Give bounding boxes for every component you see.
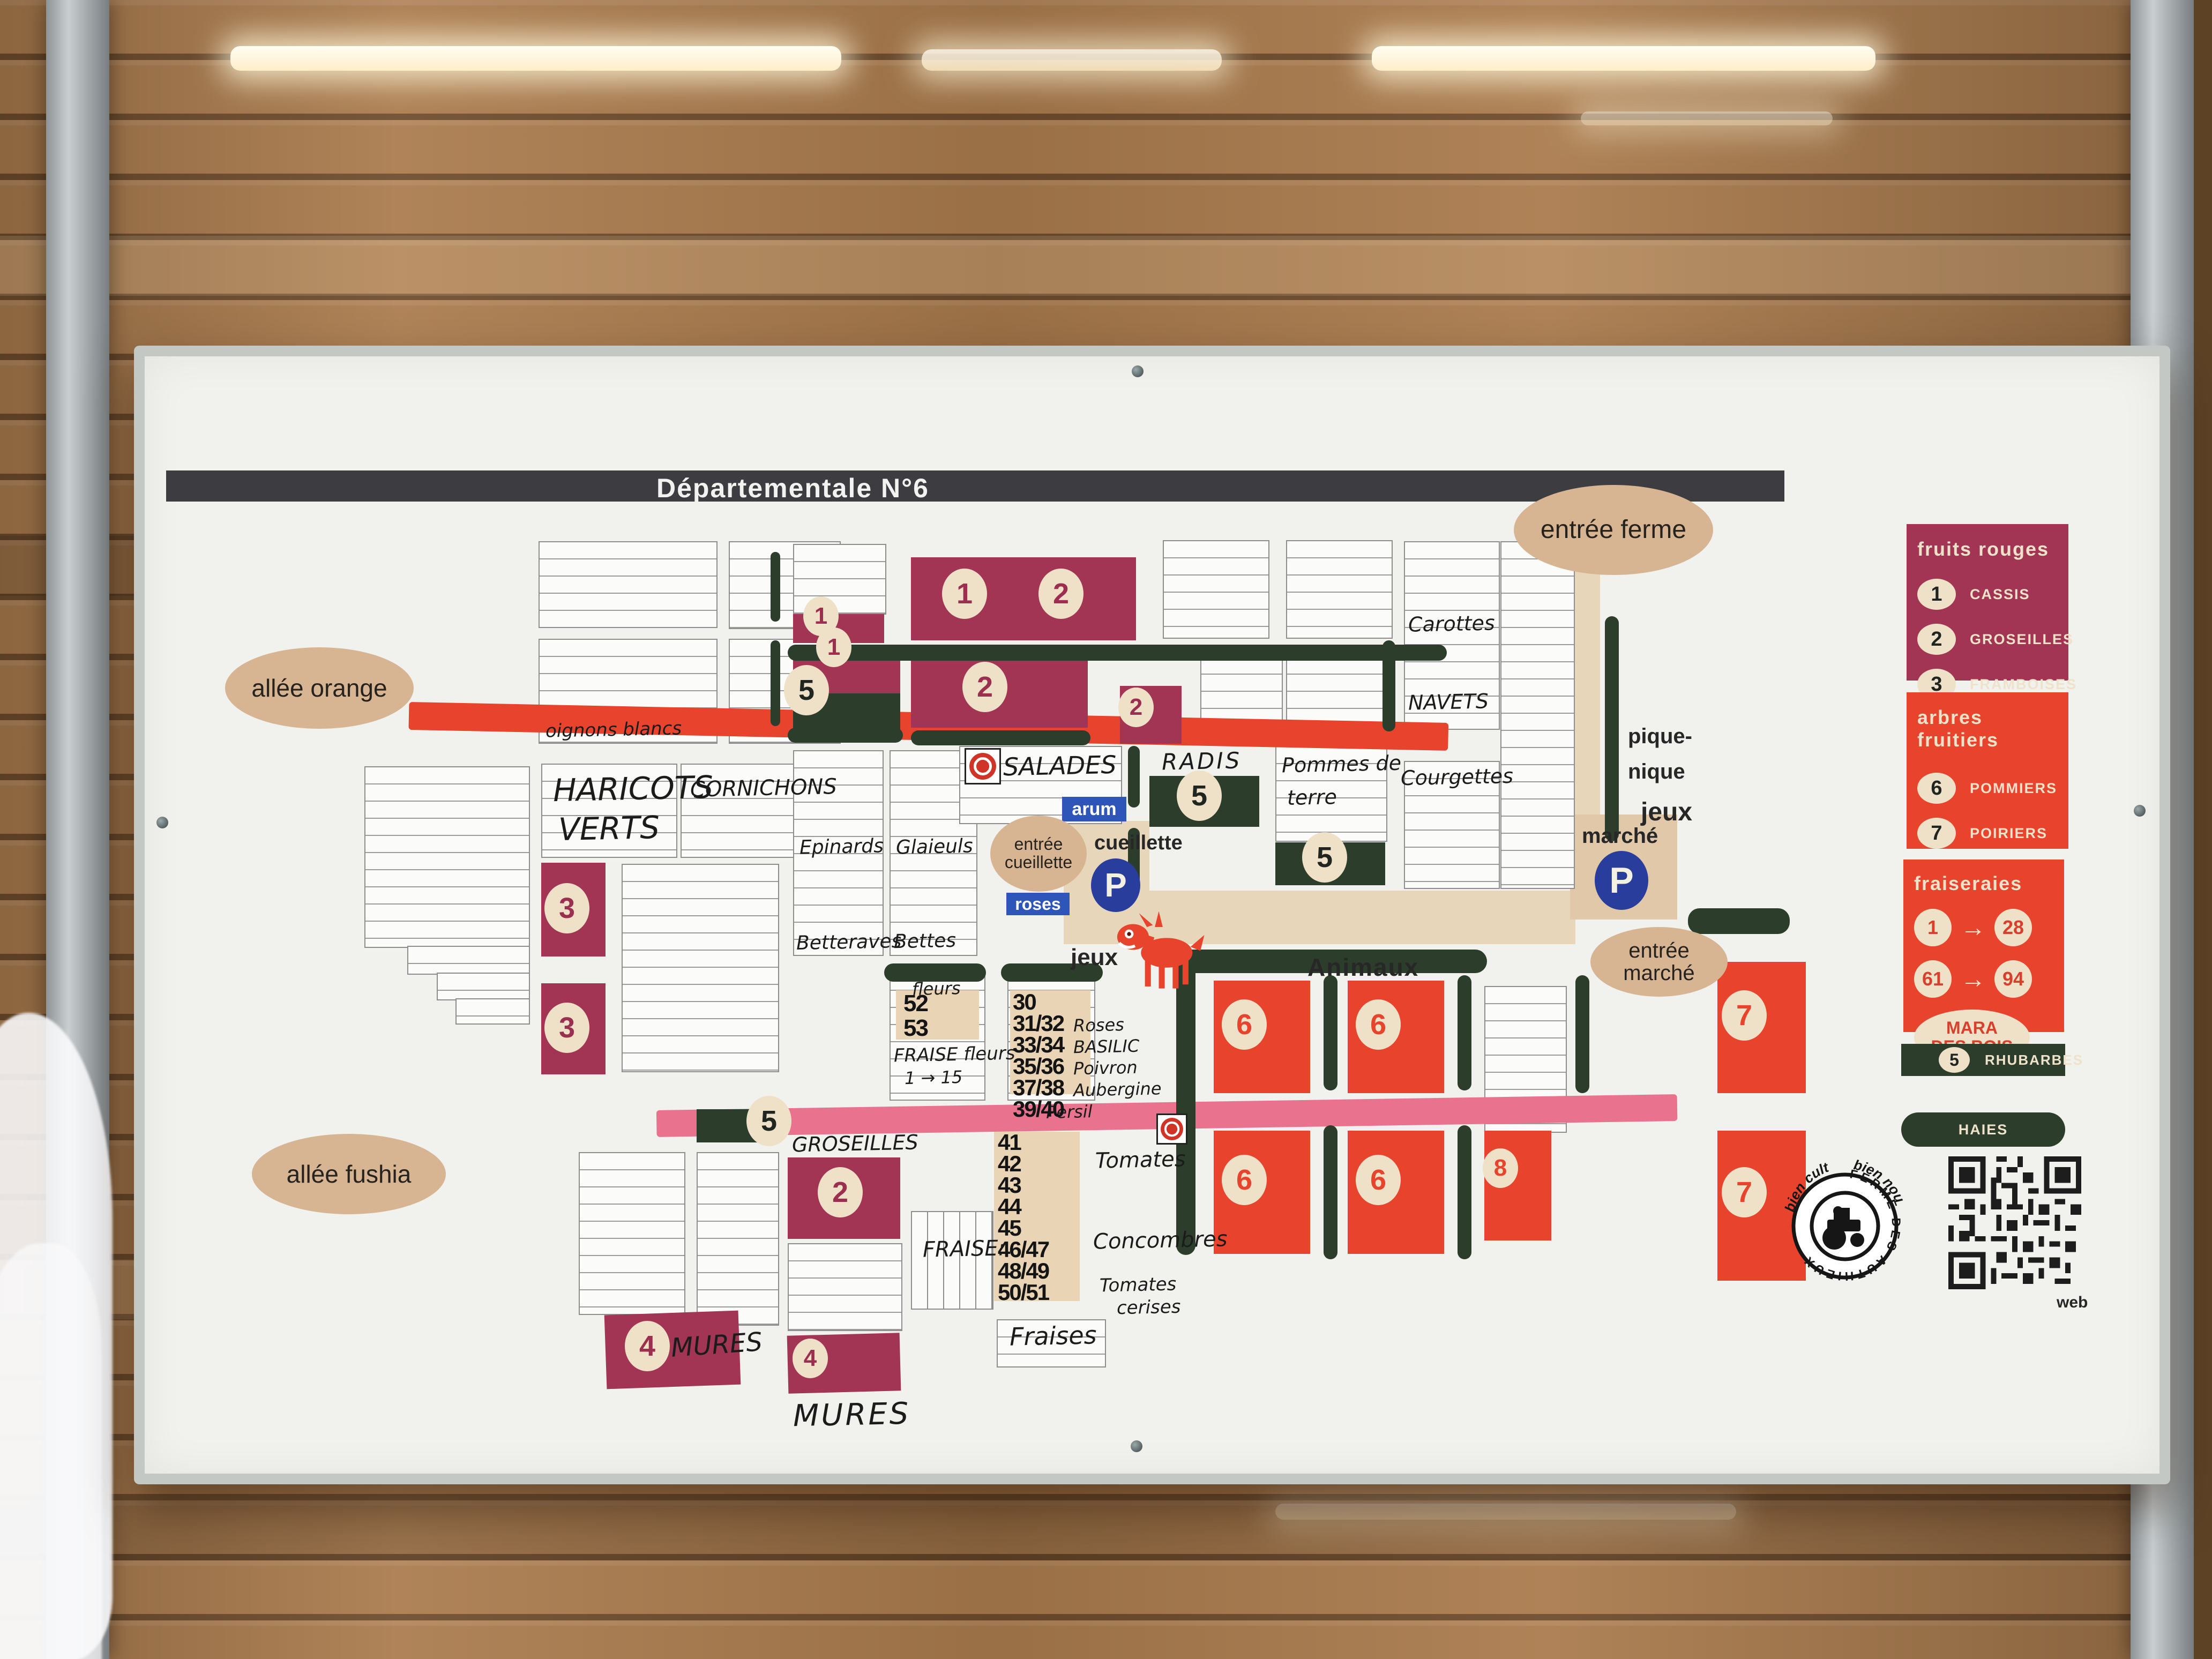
entree-ferme-text: entrée ferme <box>1541 517 1686 543</box>
light-gap <box>230 46 841 71</box>
hand-haricots-1: HARICOTS <box>552 769 713 809</box>
entree-cueillette-text-1: entrée <box>1014 835 1063 854</box>
plot-badge: 3 <box>544 1003 589 1053</box>
haie <box>771 640 780 726</box>
plot-badge: 2 <box>818 1167 863 1217</box>
haie <box>911 730 1090 745</box>
parking-symbol: P <box>1609 860 1633 901</box>
arum-label: arum <box>1062 797 1126 821</box>
jeux-picnic-label: jeux <box>1641 797 1692 827</box>
row-crop: Roses <box>1073 1014 1125 1036</box>
hand-radis: RADIS <box>1162 747 1242 775</box>
haie <box>1605 616 1619 841</box>
allee-fushia-text: allée fushia <box>287 1161 412 1187</box>
hand-haricots-2: VERTS <box>558 809 660 848</box>
row-crop: Aubergine <box>1073 1078 1162 1100</box>
plot-badge: 6 <box>1222 1155 1267 1205</box>
col-fleurs-53: 53 <box>903 1015 928 1042</box>
hand-betteraves: Betteraves <box>796 930 902 954</box>
plot-badge: 6 <box>1356 1155 1401 1205</box>
screw <box>156 817 168 828</box>
plot-badge: 5 <box>746 1096 791 1146</box>
hand-fraise-colon: FRAISE: <box>923 1236 1006 1262</box>
hand-pommes-1: Pommes de <box>1282 751 1402 778</box>
road-departementale <box>166 470 1784 502</box>
legend-badge: 5 <box>1939 1047 1970 1073</box>
plot-badge: 8 <box>1483 1148 1518 1188</box>
legend-item-label: HAIES <box>1959 1122 2008 1138</box>
roses-text: roses <box>1015 894 1060 914</box>
hand-cornichons: CORNICHONS <box>690 774 838 802</box>
field-plot <box>622 864 779 1072</box>
plot-badge: 5 <box>1302 832 1347 883</box>
qr-caption: web <box>2057 1294 2088 1312</box>
hand-mures-mid: MURES <box>793 1396 910 1434</box>
legend-item-label: POIRIERS <box>1970 825 2047 842</box>
haie <box>1458 975 1471 1090</box>
row-crop: BASILIC <box>1073 1036 1140 1058</box>
hand-courgettes: Courgettes <box>1401 764 1514 790</box>
hand-cerises-1: Tomates <box>1100 1274 1177 1297</box>
col-trente: 30 31/32Roses 33/34BASILIC 35/36Poivron … <box>1013 989 1162 1118</box>
plot-badge: 5 <box>1177 771 1222 821</box>
entree-marche-text-1: entrée <box>1628 939 1689 962</box>
hand-epinards: Epinards <box>799 835 884 858</box>
haie <box>1128 746 1140 808</box>
price-sticker <box>1156 1114 1187 1145</box>
entree-cueillette-oval: entrée cueillette <box>990 816 1087 892</box>
range-from: 1 <box>1914 909 1952 946</box>
plot-badge: 7 <box>1722 1167 1767 1217</box>
arrow-icon: → <box>1960 965 1986 994</box>
col-fleurs-52: 52 <box>903 990 928 1017</box>
allee-orange-oval: allée orange <box>225 647 414 729</box>
range-from: 61 <box>1914 960 1952 998</box>
plot-badge: 6 <box>1356 999 1401 1050</box>
plot-badge: 2 <box>1118 687 1154 727</box>
roses-label: roses <box>1006 893 1070 915</box>
screw <box>1132 365 1144 377</box>
parking-marche: P <box>1595 851 1648 910</box>
legend-badge: 2 <box>1917 624 1956 655</box>
hand-tomates: Tomates <box>1095 1147 1186 1174</box>
legend-fruits-rouges: fruits rouges 1CASSIS 2GROSEILLES 3FRAMB… <box>1907 524 2068 681</box>
hand-glaieuls: Glaieuls <box>896 835 974 858</box>
field-plot <box>788 1243 902 1331</box>
allee-fushia-oval: allée fushia <box>252 1134 446 1214</box>
road-departementale-label: Départementale N°6 <box>656 473 929 504</box>
legend-title: arbres fruitiers <box>1917 706 2058 751</box>
plot-badge: 7 <box>1722 990 1767 1041</box>
light-gap <box>1581 111 1833 125</box>
hand-fraise-range: 1 → 15 <box>905 1067 963 1088</box>
haie <box>1324 975 1337 1090</box>
entree-marche-oval: entrée marché <box>1590 927 1728 997</box>
allee-orange-text: allée orange <box>251 675 387 701</box>
hand-cerises-2: cerises <box>1117 1296 1181 1319</box>
qr-code <box>1948 1156 2081 1289</box>
plot-badge: 2 <box>1038 569 1083 619</box>
haie <box>1324 1125 1337 1259</box>
entree-ferme-oval: entrée ferme <box>1514 485 1713 575</box>
hand-oignons-blancs: oignons blancs <box>545 718 682 742</box>
photo-scene: Départementale N°6 <box>0 0 2212 1659</box>
field-plot <box>579 1152 685 1315</box>
hand-groseilles: GROSEILLES <box>792 1131 918 1157</box>
legend-haies: HAIES <box>1901 1112 2065 1147</box>
pique-nique-label-2: nique <box>1628 760 1685 784</box>
wood-edge-strip <box>2194 0 2212 1659</box>
haie <box>788 645 1447 661</box>
screw <box>2134 805 2146 817</box>
arum-text: arum <box>1072 799 1116 820</box>
plot-badge: 2 <box>962 662 1007 712</box>
variety-text-1: MARA <box>1946 1019 1998 1037</box>
hand-navets: NAVETS <box>1408 689 1489 714</box>
col-quarante: 41 42 43 44 45 46/47 48/49 50/51 <box>998 1130 1049 1301</box>
field-plot <box>539 541 718 628</box>
plank-shade <box>0 236 2212 296</box>
arrow-icon: → <box>1960 913 1986 943</box>
legend-item-label: GROSEILLES <box>1970 631 2074 648</box>
row-num: 50/51 <box>998 1280 1049 1305</box>
field-plot <box>455 998 530 1025</box>
haie <box>1575 975 1589 1093</box>
plank-shade <box>0 1500 2212 1560</box>
hand-fraises: Fraises <box>1009 1320 1097 1351</box>
haie <box>1688 908 1790 934</box>
price-sticker <box>965 748 1001 784</box>
hand-salades: SALADES <box>1003 750 1117 781</box>
plot-badge: 4 <box>793 1339 828 1378</box>
range-to: 94 <box>1994 960 2032 998</box>
plot-badge: 1 <box>942 569 987 619</box>
legend-item-label: POMMIERS <box>1970 780 2057 797</box>
hand-carottes: Carottes <box>1408 611 1496 636</box>
legend-item-label: RHUBARBES <box>1985 1052 2083 1068</box>
haie <box>788 728 903 743</box>
plot-badge: 6 <box>1222 999 1267 1050</box>
legend-fraiseraies: fraiseraies 1 → 28 61 → 94 MARA DES BOIS <box>1903 860 2064 1032</box>
legend-rhubarbes: 5 RHUBARBES <box>1901 1044 2065 1076</box>
hand-fraise-fleurs: FRAISE fleurs <box>894 1043 1015 1067</box>
plot-badge: 1 <box>816 627 851 667</box>
field-plot <box>1163 540 1269 639</box>
row-num: 39/40 <box>1013 1096 1064 1122</box>
entree-cueillette-text-2: cueillette <box>1005 854 1072 872</box>
cueillette-road-label: cueillette <box>1094 832 1183 855</box>
pique-nique-label-1: pique- <box>1628 724 1692 749</box>
plastic-bag <box>0 1243 102 1659</box>
field-plot <box>437 973 530 1000</box>
light-gap <box>922 49 1222 71</box>
plot-badge: 3 <box>544 883 589 933</box>
screw <box>1131 1440 1142 1452</box>
haie <box>771 552 780 622</box>
field-plot <box>1286 540 1393 639</box>
animaux-label: Animaux <box>1307 953 1419 982</box>
haie-animaux-left <box>1176 950 1195 1255</box>
legend-title: fraiseraies <box>1914 872 2053 895</box>
plot-badge: 5 <box>784 665 829 715</box>
light-gap <box>1372 46 1875 71</box>
goat-drawing <box>1109 901 1208 992</box>
row-crop: Poivron <box>1073 1057 1138 1079</box>
range-to: 28 <box>1994 909 2032 946</box>
plot-badge: 4 <box>625 1321 670 1371</box>
legend-title: fruits rouges <box>1917 538 2058 561</box>
field-plot <box>697 1152 779 1326</box>
legend-item-label: CASSIS <box>1970 586 2030 603</box>
haie <box>1458 1125 1471 1259</box>
field-plot <box>1500 541 1575 889</box>
hand-concombres: Concombres <box>1093 1227 1228 1254</box>
haie <box>1382 640 1395 731</box>
entree-marche-text-2: marché <box>1623 962 1694 984</box>
marche-parking-label: marché <box>1582 824 1658 848</box>
market-road-horizontal <box>1147 891 1575 944</box>
hand-mures-left: MURES <box>670 1327 763 1363</box>
legend-badge: 1 <box>1917 579 1956 610</box>
legend-badge: 7 <box>1917 818 1956 849</box>
field-plot <box>407 946 530 975</box>
light-gap <box>1275 1504 1736 1520</box>
legend-arbres-fruitiers: arbres fruitiers 6POMMIERS 7POIRIERS 8PR… <box>1907 692 2068 849</box>
parking-symbol: P <box>1104 866 1126 905</box>
legend-item-label: FRAMBOISES <box>1970 676 2077 693</box>
farm-logo: bien cultivé bien nourri FERME DES AUTHI… <box>1778 1156 1912 1290</box>
legend-badge: 6 <box>1917 773 1956 804</box>
field-plot <box>364 766 530 948</box>
hand-pommes-2: terre <box>1287 785 1337 810</box>
hand-bettes: Bettes <box>894 930 956 953</box>
